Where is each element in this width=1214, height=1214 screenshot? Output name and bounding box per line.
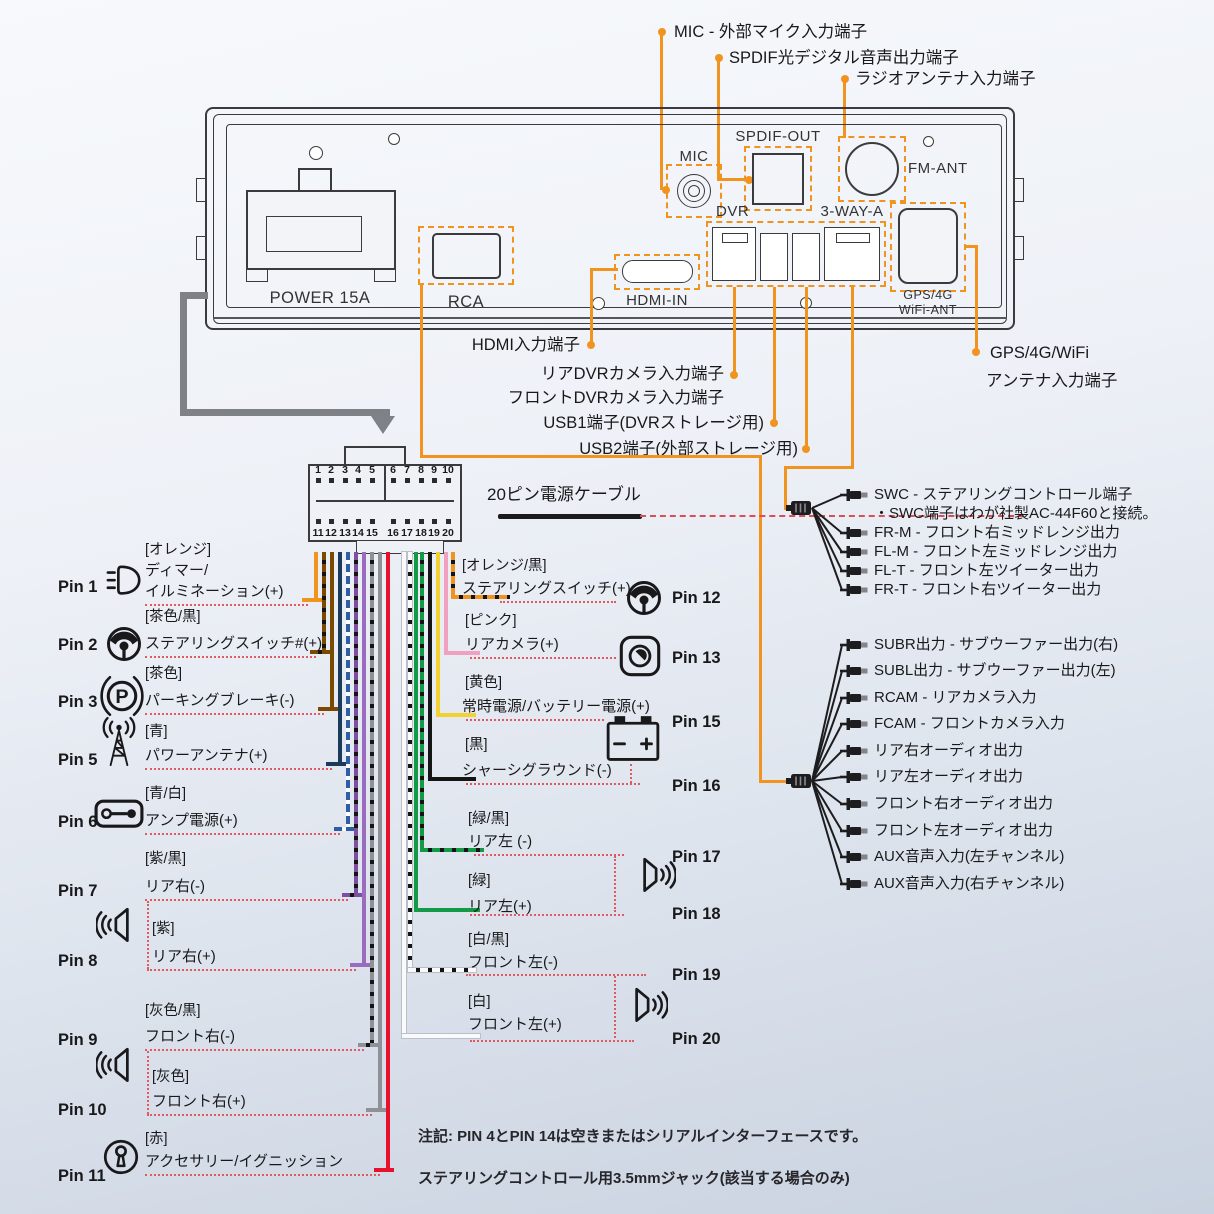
rca-plug-icon	[840, 690, 870, 706]
speaker-icon	[96, 904, 142, 950]
pin-function-label: アクセサリー/イグニッション	[145, 1153, 343, 1172]
rca-plug-icon	[840, 876, 870, 892]
radio-antenna-top-label: ラジオアンテナ入力端子	[855, 69, 1036, 90]
rca-plug-icon	[840, 769, 870, 785]
wire-underline	[145, 899, 348, 901]
pin-function-label: アンプ電源(+)	[145, 812, 238, 831]
wire-underline	[500, 601, 616, 603]
speaker-icon	[630, 854, 676, 900]
pin-function-label: フロント右(+)	[152, 1093, 246, 1112]
wire-pin-7	[354, 552, 358, 897]
spdif-top-label: SPDIF光デジタル音声出力端子	[729, 48, 959, 69]
usb2-port	[792, 233, 820, 281]
wire-underline	[147, 1114, 372, 1116]
pin-function-label: イルミネーション(+)	[145, 583, 283, 602]
cable-arrow	[371, 416, 395, 434]
screw-hole	[388, 133, 400, 145]
harness-item-label: FL-M - フロント左ミッドレンジ出力	[874, 543, 1117, 562]
wire-color-label: [黒]	[465, 736, 488, 754]
battery-icon	[606, 714, 660, 764]
pin-contact	[343, 519, 348, 524]
harness-item-label: RCAM - リアカメラ入力	[874, 689, 1037, 708]
rca-plug-icon	[840, 525, 870, 541]
wire-pin-19	[408, 968, 476, 972]
fm-antenna-jack	[845, 142, 899, 196]
wire-color-label: [緑/黒]	[468, 810, 509, 828]
power-cable	[180, 409, 390, 416]
dvr-label: DVR	[716, 203, 749, 222]
leader-dot	[730, 371, 738, 379]
cable-stub-line	[498, 514, 642, 519]
swc-leader-line	[784, 466, 854, 469]
pin-label: Pin 9	[58, 1030, 97, 1051]
wire-underline	[145, 713, 324, 715]
rca-plug-icon	[840, 637, 870, 653]
pin-label: Pin 6	[58, 812, 97, 833]
harness-item-label: AUX音声入力(右チャンネル)	[874, 875, 1064, 894]
wire-color-label: [白]	[468, 993, 491, 1011]
usb-tongue	[722, 233, 748, 243]
wire-color-label: [黄色]	[465, 674, 502, 692]
wire-pin-13	[444, 552, 448, 655]
wire-pin-17	[420, 552, 424, 852]
wire-underline	[474, 854, 624, 856]
usb1-leader-line	[773, 287, 776, 420]
wire-color-label: [紫/黒]	[145, 850, 186, 868]
amplifier-icon	[94, 798, 144, 830]
wire-underline	[470, 657, 616, 659]
wire-color-label: [赤]	[145, 1130, 168, 1148]
pin-function-label: パワーアンテナ(+)	[145, 747, 268, 766]
dashed-connector	[614, 856, 616, 912]
pin-function-label: リア左 (-)	[468, 833, 532, 852]
pin-label: Pin 15	[672, 712, 721, 733]
steering-wheel-icon	[104, 624, 144, 664]
screw-hole	[592, 297, 605, 310]
harness-item-label: SUBR出力 - サブウーファー出力(右)	[874, 636, 1118, 655]
wire-pin-9	[370, 552, 374, 1047]
mount-tab	[196, 178, 206, 202]
wire-color-label: [灰色/黒]	[145, 1002, 201, 1020]
rca-plug-icon	[840, 796, 870, 812]
dashed-bracket	[147, 901, 149, 969]
pin-label: Pin 16	[672, 776, 721, 797]
parking-brake-icon: P	[100, 674, 144, 718]
pin-label: Pin 17	[672, 847, 721, 868]
connector-divider	[316, 500, 454, 502]
wire-underline	[145, 656, 316, 658]
pin-label: Pin 20	[672, 1029, 721, 1050]
pin-number: 10	[440, 464, 456, 477]
pin-function-label: フロント左(-)	[468, 954, 558, 973]
hdmi-in-label: HDMI-IN	[607, 292, 707, 311]
pin-contact	[356, 478, 361, 483]
rca-port	[432, 233, 501, 279]
camera-icon	[618, 634, 662, 678]
rca-plug-icon	[840, 663, 870, 679]
wire-underline	[470, 1040, 634, 1042]
wire-pin-10	[378, 552, 382, 1112]
pin-function-label: ステアリングスイッチ#(+)	[145, 635, 322, 654]
harness-splitter	[786, 499, 812, 517]
pin-number: 20	[438, 527, 458, 540]
pin-contact	[316, 519, 321, 524]
pin-function-label: リア右(-)	[145, 878, 205, 897]
gps-antenna-label-2: アンテナ入力端子	[986, 371, 1117, 392]
wire-color-label: [ピンク]	[465, 612, 517, 630]
wire-underline	[145, 1174, 380, 1176]
pin-label: Pin 10	[58, 1100, 107, 1121]
pin-function-label: パーキングブレーキ(-)	[145, 692, 295, 711]
hdmi-port	[622, 260, 693, 283]
dashed-connector	[614, 976, 616, 1038]
note-line-1: 注記: PIN 4とPIN 14は空きまたはシリアルインターフェースです。	[418, 1128, 867, 1147]
pin-function-label: ディマー/	[145, 562, 208, 581]
connector-top-tab	[344, 446, 406, 466]
power-connector-tab	[298, 168, 332, 192]
pin-function-label: ステアリングスイッチ(+)	[462, 580, 631, 599]
mic-jack-center	[688, 185, 700, 197]
hdmi-leader-line	[590, 268, 618, 271]
pin-label: Pin 3	[58, 692, 97, 713]
harness-item-label: リア右オーディオ出力	[874, 742, 1023, 761]
dashed-bracket	[147, 1051, 149, 1114]
usb1-port	[760, 233, 788, 281]
wire-pin-6	[334, 827, 354, 831]
pin-number: 15	[362, 527, 382, 540]
pin-function-label: リア左(+)	[468, 898, 532, 917]
pin-contact	[329, 478, 334, 483]
pin-label: Pin 8	[58, 951, 97, 972]
leader-dot	[662, 186, 670, 194]
leader-dot	[770, 419, 778, 427]
gps-antenna-port	[898, 208, 958, 284]
wire-pin-15	[436, 552, 440, 717]
pin-label: Pin 1	[58, 577, 97, 598]
wire-pin-1	[314, 552, 318, 602]
rca-plug-icon	[840, 716, 870, 732]
pin-contact	[391, 478, 396, 483]
pin-label: Pin 13	[672, 648, 721, 669]
hdmi-port-label: HDMI入力端子	[440, 335, 580, 356]
power-cable-label: 20ピン電源ケーブル	[487, 484, 641, 505]
mount-tab	[1014, 178, 1024, 202]
mount-tab	[196, 236, 206, 260]
wire-pin-10	[366, 1108, 386, 1112]
pin-function-label: リア右(+)	[152, 948, 216, 967]
gps-port-label-2: WiFi-ANT	[890, 303, 966, 319]
pin-contact	[329, 519, 334, 524]
pin-contact	[343, 478, 348, 483]
wire-underline	[145, 833, 340, 835]
wire-pin-1	[302, 598, 322, 602]
pin-label: Pin 2	[58, 635, 97, 656]
wire-color-label: [オレンジ]	[145, 541, 211, 559]
chassis-lip-line	[213, 317, 1007, 319]
pin-contact	[405, 478, 410, 483]
usb-tongue	[836, 233, 870, 243]
wire-underline	[147, 969, 356, 971]
rca-plug-icon	[840, 743, 870, 759]
wire-pin-9	[358, 1043, 378, 1047]
wire-pin-11	[374, 1168, 394, 1172]
rca-plug-icon	[840, 582, 870, 598]
pin-contact	[370, 478, 375, 483]
pin-label: Pin 7	[58, 881, 97, 902]
harness-item-label: AUX音声入力(左チャンネル)	[874, 848, 1064, 867]
rca-plug-icon	[840, 563, 870, 579]
ignition-key-icon	[100, 1136, 142, 1178]
wire-color-label: [青]	[145, 723, 168, 741]
fm-ant-label: FM-ANT	[908, 160, 968, 179]
pin-number: 5	[364, 464, 380, 477]
rca-leader-line	[420, 285, 423, 458]
swc-leader-line	[851, 287, 854, 468]
note-line-2: ステアリングコントロール用3.5mmジャック(該当する場合のみ)	[418, 1170, 850, 1189]
speaker-icon	[622, 984, 668, 1030]
antenna-icon	[96, 716, 142, 768]
wire-color-label: [茶色]	[145, 665, 182, 683]
rca-plug-icon	[840, 849, 870, 865]
usb2-leader-line	[805, 287, 808, 446]
power-cable	[180, 292, 187, 416]
wire-color-label: [緑]	[468, 872, 491, 890]
pin-contact	[432, 519, 437, 524]
leader-dot	[587, 341, 595, 349]
harness-item-label: FR-T - フロント右ツイーター出力	[874, 581, 1101, 600]
pin-contact	[446, 478, 451, 483]
wire-underline	[466, 719, 604, 721]
harness-item-label: フロント左オーディオ出力	[874, 822, 1053, 841]
pin-contact	[432, 478, 437, 483]
pin-contact	[370, 519, 375, 524]
power-connector-foot	[374, 268, 396, 282]
wire-underline	[145, 768, 332, 770]
harness-item-label: SUBL出力 - サブウーファー出力(左)	[874, 662, 1116, 681]
pin-function-label: リアカメラ(+)	[465, 636, 559, 655]
wire-pin-5	[338, 552, 342, 766]
speaker-icon	[96, 1044, 142, 1090]
wire-pin-3	[318, 707, 338, 711]
wire-underline	[466, 783, 640, 785]
wire-pin-12	[451, 552, 455, 599]
wire-pin-5	[326, 762, 346, 766]
harness-item-label: リア左オーディオ出力	[874, 768, 1023, 787]
wire-pin-3	[330, 552, 334, 711]
wire-pin-18	[414, 552, 418, 912]
pin-function-label: フロント右(-)	[145, 1028, 235, 1047]
wire-pin-6	[346, 552, 350, 831]
spdif-port	[752, 153, 804, 205]
rca-label: RCA	[418, 292, 514, 313]
headlight-icon	[106, 564, 144, 598]
rca-plug-icon	[840, 544, 870, 560]
pin-contact	[419, 519, 424, 524]
pin-contact	[419, 478, 424, 483]
svg-text:P: P	[115, 686, 128, 708]
harness-item-label: FR-M - フロント右ミッドレンジ出力	[874, 524, 1120, 543]
wire-pin-8	[350, 963, 370, 967]
wire-pin-20	[402, 552, 406, 1038]
rca-plug-icon	[840, 487, 870, 503]
wire-pin-11	[386, 552, 390, 1172]
harness-item-label: フロント右オーディオ出力	[874, 795, 1053, 814]
harness-item-label: FCAM - フロントカメラ入力	[874, 715, 1065, 734]
leader-dot	[802, 445, 810, 453]
wiring-diagram-canvas: MIC - 外部マイク入力端子 SPDIF光デジタル音声出力端子 ラジオアンテナ…	[0, 0, 1214, 1214]
three-way-a-label: 3-WAY-A	[810, 203, 894, 222]
harness-item-label: FL-T - フロント左ツイーター出力	[874, 562, 1099, 581]
wire-color-label: [灰色]	[152, 1068, 189, 1086]
mount-tab	[1014, 236, 1024, 260]
power-label: POWER 15A	[244, 288, 396, 309]
wire-pin-19	[408, 552, 412, 972]
pin-label: Pin 12	[672, 588, 721, 609]
gps-leader-line	[975, 245, 978, 350]
hdmi-leader-line	[590, 268, 593, 342]
screw-hole	[923, 136, 934, 147]
wire-pin-8	[362, 552, 366, 967]
pin-label: Pin 5	[58, 750, 97, 771]
power-connector-slot	[266, 216, 362, 252]
pin-contact	[316, 478, 321, 483]
pin-function-label: シャーシグラウンド(-)	[462, 762, 612, 781]
wire-underline	[466, 974, 646, 976]
steering-wheel-icon	[624, 578, 664, 618]
harness-item-label: ・SWC端子はわが社製AC-44F60と接続。	[874, 505, 1157, 524]
wire-pin-7	[342, 893, 362, 897]
harness-item-label: SWC - ステアリングコントロール端子	[874, 486, 1132, 505]
pin-label: Pin 18	[672, 904, 721, 925]
wire-color-label: [茶色/黒]	[145, 608, 201, 626]
pin-label: Pin 11	[58, 1166, 106, 1187]
wire-pin-2	[322, 552, 326, 654]
wire-color-label: [紫]	[152, 920, 175, 938]
rca-leader-line	[420, 455, 762, 458]
power-connector-foot	[246, 268, 268, 282]
wire-color-label: [青/白]	[145, 785, 186, 803]
usb1-label: USB1端子(DVRストレージ用)	[464, 413, 764, 434]
pin-contact	[356, 519, 361, 524]
rear-dvr-label: リアDVRカメラ入力端子	[464, 364, 724, 385]
rca-leader-line	[759, 455, 762, 783]
pin-contact	[391, 519, 396, 524]
harness-splitter	[786, 772, 812, 790]
pin-label: Pin 19	[672, 965, 721, 986]
dvr-cam-leader-line	[733, 287, 736, 372]
wire-color-label: [白/黒]	[468, 931, 509, 949]
pin-contact	[405, 519, 410, 524]
spdif-out-label: SPDIF-OUT	[726, 128, 830, 147]
screw-hole	[309, 146, 323, 160]
gps-antenna-label-1: GPS/4G/WiFi	[990, 343, 1089, 364]
dashed-connector	[630, 764, 632, 783]
pin-contact	[446, 519, 451, 524]
leader-dot	[972, 348, 980, 356]
front-dvr-label: フロントDVRカメラ入力端子	[464, 388, 724, 409]
rca-plug-icon	[840, 823, 870, 839]
pin-function-label: フロント左(+)	[468, 1016, 562, 1035]
gps-port-label-1: GPS/4G	[890, 288, 966, 304]
mic-top-label: MIC - 外部マイク入力端子	[674, 22, 867, 43]
wire-underline	[145, 604, 308, 606]
wire-pin-16	[428, 552, 432, 781]
wire-color-label: [オレンジ/黒]	[462, 557, 547, 575]
wire-underline	[145, 1049, 364, 1051]
